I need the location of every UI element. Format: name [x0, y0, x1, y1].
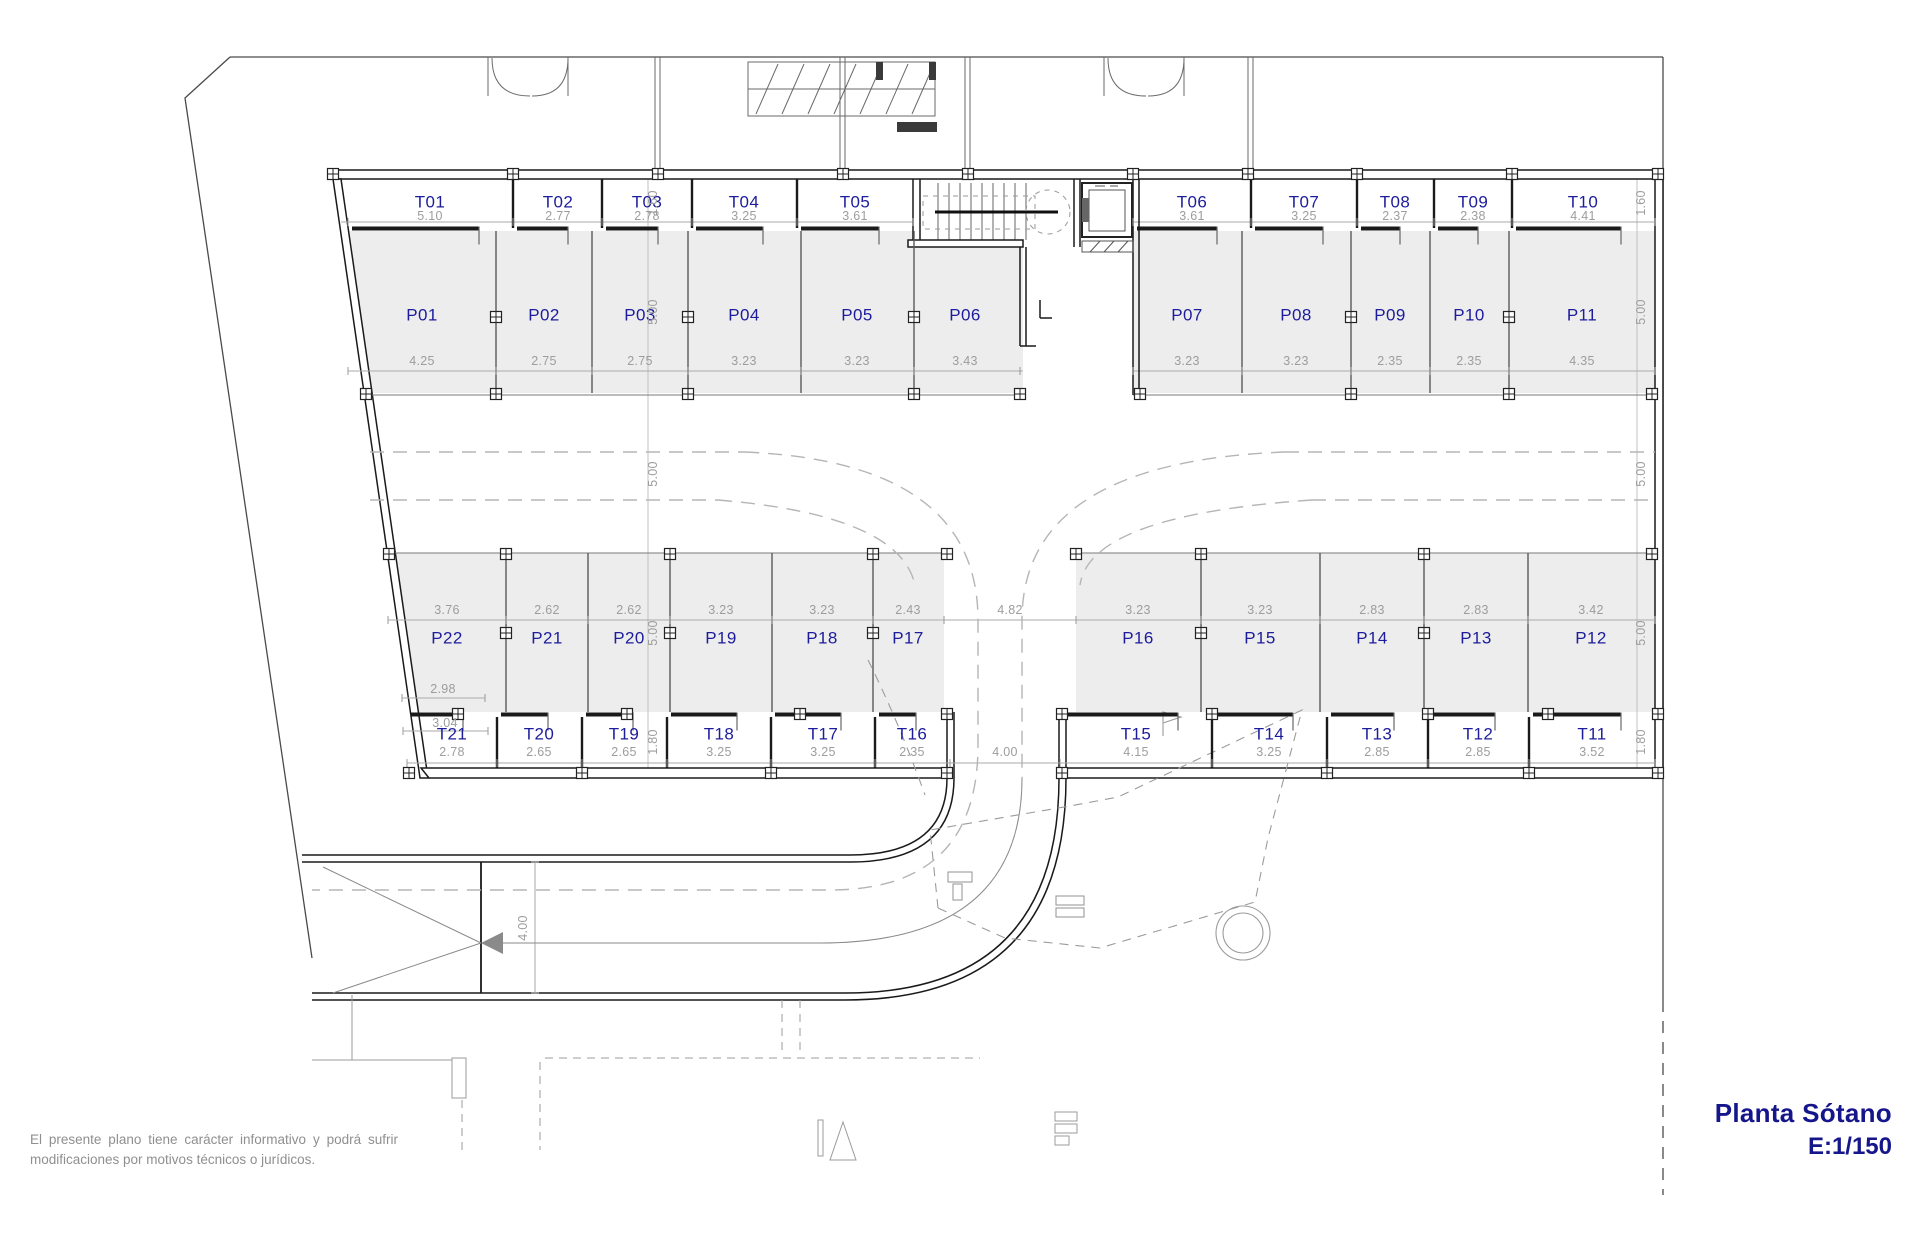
- disclaimer-line-1: El presente plano tiene carácter informa…: [30, 1130, 398, 1150]
- stall-front-lines: [366, 395, 1655, 553]
- elevator: [1082, 183, 1133, 252]
- upper-strip-walls: [488, 57, 1253, 170]
- door-arc-left: [492, 58, 568, 96]
- title-block: Planta Sótano E:1/150: [1715, 1098, 1892, 1161]
- page-scale: E:1/150: [1715, 1133, 1892, 1161]
- plan-linework: [0, 0, 1920, 1237]
- site-misc: [312, 995, 1077, 1160]
- tree-circle: [1216, 906, 1270, 960]
- elevator-door: [1082, 198, 1089, 222]
- vent-grille: [1082, 241, 1133, 252]
- disclaimer: El presente plano tiene carácter informa…: [30, 1130, 398, 1169]
- parking-stall-fills: [342, 231, 1655, 712]
- marker-triangle: [830, 1122, 856, 1160]
- ramp-arrow-head: [481, 932, 503, 954]
- floor-plan-sheet: T015.10T022.77T032.78T043.25T053.61T063.…: [0, 0, 1920, 1237]
- page-title: Planta Sótano: [1715, 1098, 1892, 1129]
- door-arc-right: [1108, 58, 1184, 96]
- ramp-symbol: [323, 778, 1022, 993]
- disclaimer-line-2: modificaciones por motivos técnicos o ju…: [30, 1150, 398, 1170]
- driveway-walls: [302, 778, 1066, 1000]
